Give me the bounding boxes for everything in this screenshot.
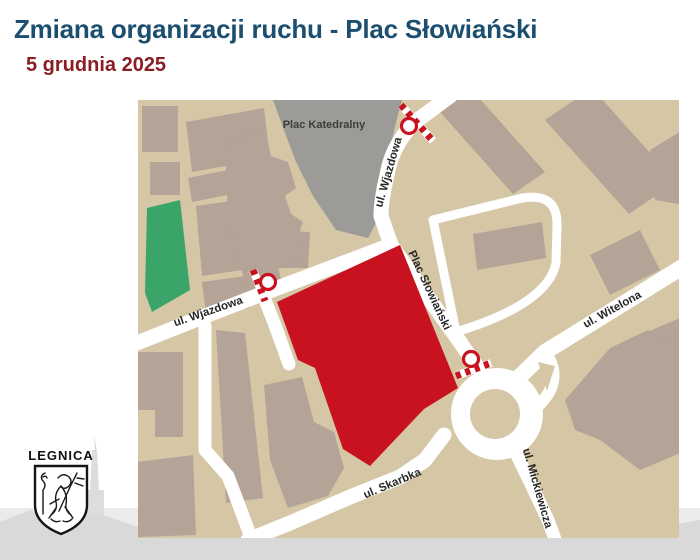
label-plac-katedralny: Plac Katedralny: [283, 119, 366, 131]
legnica-logo-text: LEGNICA: [26, 448, 96, 463]
page-title: Zmiana organizacji ruchu - Plac Słowiańs…: [14, 14, 686, 45]
legnica-coat-of-arms: [31, 463, 91, 537]
legnica-crest: LEGNICA: [26, 448, 96, 542]
traffic-map: Plac Katedralny ul. Wjazdowa ul. Wjazdow…: [138, 100, 679, 538]
map-canvas: Plac Katedralny ul. Wjazdowa ul. Wjazdow…: [138, 100, 679, 538]
page-date: 5 grudnia 2025: [26, 54, 166, 77]
